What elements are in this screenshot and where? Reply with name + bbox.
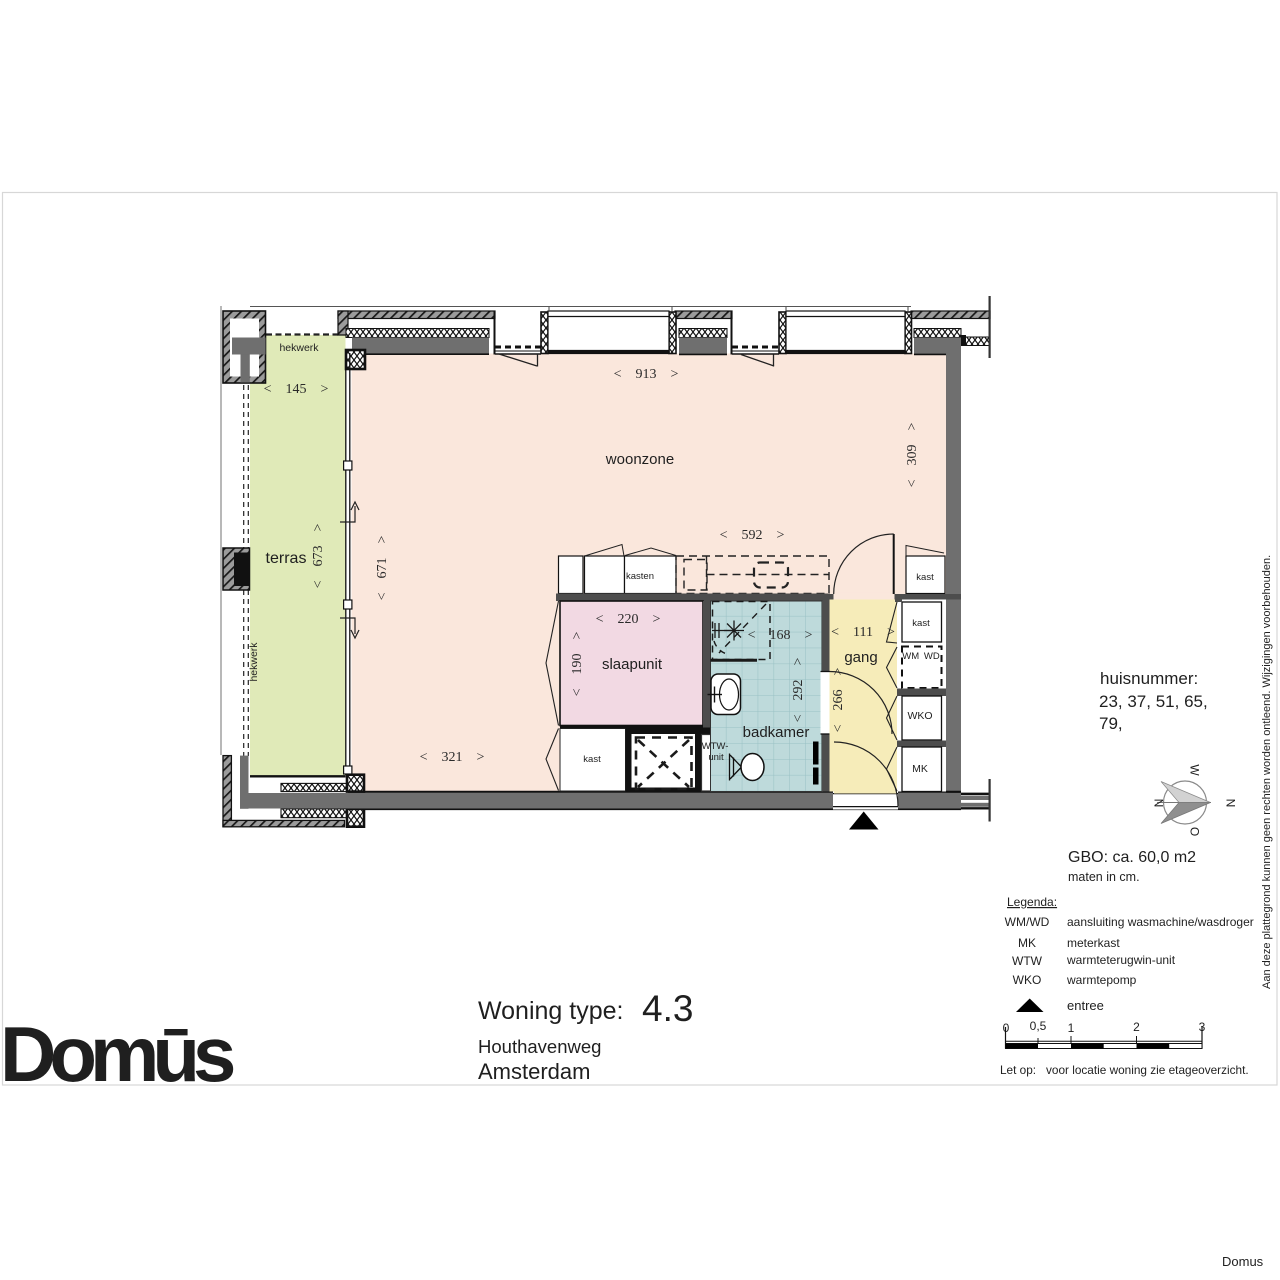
svg-text:meterkast: meterkast	[1067, 936, 1120, 950]
svg-text:Aan deze plattegrond kunnen ge: Aan deze plattegrond kunnen geen rechten…	[1261, 555, 1273, 989]
svg-text:WKO: WKO	[1013, 973, 1042, 987]
svg-text:0,5: 0,5	[1030, 1019, 1047, 1033]
svg-text:< 913 >: < 913 >	[614, 367, 679, 382]
svg-text:1: 1	[1068, 1021, 1075, 1035]
svg-text:MK: MK	[912, 763, 928, 775]
svg-text:79,: 79,	[1099, 714, 1123, 733]
svg-text:< 111 >: < 111 >	[831, 625, 895, 640]
svg-text:woonzone: woonzone	[605, 451, 674, 468]
svg-text:N: N	[1224, 799, 1238, 808]
svg-text:< 292 >: < 292 >	[791, 658, 806, 723]
svg-text:voor locatie woning zie etageo: voor locatie woning zie etageoverzicht.	[1046, 1063, 1249, 1077]
svg-text:< 671 >: < 671 >	[375, 536, 390, 601]
svg-text:hekwerk: hekwerk	[248, 642, 260, 682]
svg-text:Legenda:: Legenda:	[1007, 895, 1057, 909]
svg-text:WM/WD: WM/WD	[1005, 915, 1050, 929]
svg-text:W: W	[1188, 764, 1202, 776]
svg-text:badkamer: badkamer	[743, 724, 810, 741]
svg-text:Woning type:: Woning type:	[478, 997, 623, 1025]
svg-text:< 266 >: < 266 >	[831, 668, 846, 733]
svg-text:< 309 >: < 309 >	[905, 423, 920, 488]
svg-text:2: 2	[1133, 1020, 1140, 1034]
svg-text:WTW-: WTW-	[702, 741, 729, 752]
svg-text:< 321 >: < 321 >	[420, 750, 485, 765]
svg-text:< 592 >: < 592 >	[720, 528, 785, 543]
svg-text:warmtepomp: warmtepomp	[1066, 973, 1137, 987]
svg-text:N: N	[1152, 799, 1166, 808]
svg-text:kasten: kasten	[626, 571, 654, 582]
svg-text:huisnummer:: huisnummer:	[1100, 669, 1198, 688]
svg-text:kast: kast	[583, 754, 601, 765]
svg-text:O: O	[1188, 827, 1202, 836]
svg-text:WM WD: WM WD	[902, 651, 940, 662]
svg-text:Domus: Domus	[1222, 1254, 1264, 1269]
svg-text:maten in cm.: maten in cm.	[1068, 870, 1140, 884]
svg-text:kast: kast	[912, 618, 930, 629]
svg-text:warmteterugwin-unit: warmteterugwin-unit	[1066, 953, 1176, 967]
svg-text:Let op:: Let op:	[1000, 1063, 1036, 1077]
svg-text:aansluiting wasmachine/wasdrog: aansluiting wasmachine/wasdroger	[1067, 915, 1254, 929]
svg-text:slaapunit: slaapunit	[602, 656, 663, 673]
svg-text:terras: terras	[266, 550, 307, 567]
svg-text:hekwerk: hekwerk	[279, 342, 319, 354]
svg-text:unit: unit	[708, 752, 724, 763]
svg-text:23, 37, 51, 65,: 23, 37, 51, 65,	[1099, 692, 1208, 711]
svg-text:MK: MK	[1018, 936, 1036, 950]
svg-text:Houthavenweg: Houthavenweg	[478, 1036, 601, 1057]
svg-text:< 190 >: < 190 >	[570, 632, 585, 697]
svg-text:entree: entree	[1067, 998, 1104, 1013]
svg-text:< 220 >: < 220 >	[596, 612, 661, 627]
svg-text:< 168 >: < 168 >	[748, 628, 813, 643]
svg-text:4.3: 4.3	[642, 988, 693, 1029]
svg-text:< 673 >: < 673 >	[311, 524, 326, 589]
svg-text:kast: kast	[916, 572, 934, 583]
svg-text:gang: gang	[844, 649, 877, 666]
svg-text:0: 0	[1003, 1021, 1010, 1035]
svg-text:WTW: WTW	[1012, 954, 1043, 968]
svg-text:GBO: ca. 60,0 m2: GBO: ca. 60,0 m2	[1068, 849, 1196, 866]
svg-text:WKO: WKO	[907, 710, 932, 722]
svg-text:Amsterdam: Amsterdam	[478, 1059, 590, 1084]
svg-text:Domūs: Domūs	[0, 1010, 234, 1098]
svg-text:< 145 >: < 145 >	[264, 382, 329, 397]
